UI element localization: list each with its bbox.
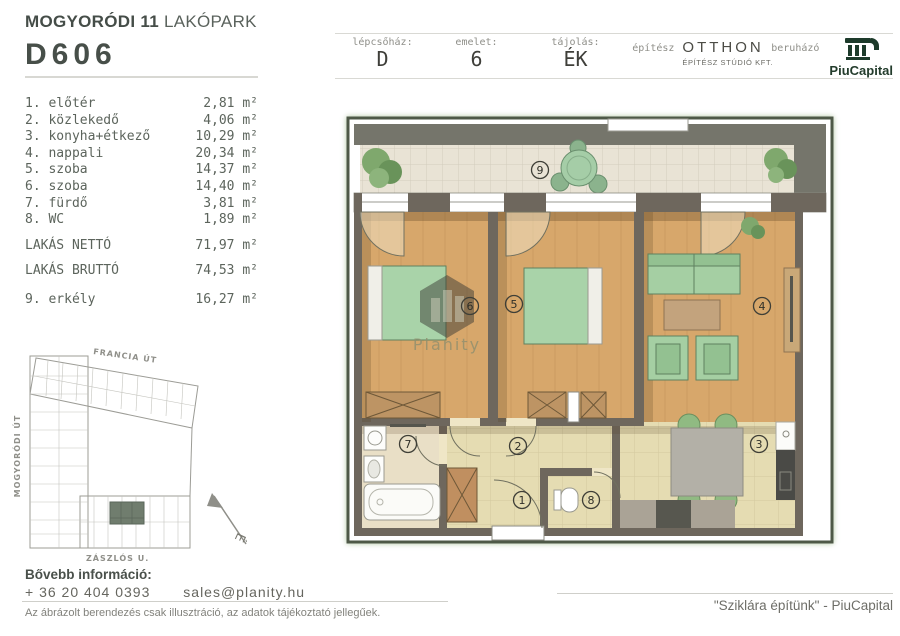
project-name-bold: MOGYORÓDI 11 [25, 12, 159, 31]
room-row: 7. fürdő3,81 m² [25, 196, 258, 213]
north-arrow: É [207, 493, 249, 545]
highlighted-unit [110, 502, 144, 524]
room-area: 4,06 m² [203, 113, 258, 130]
room-row: 8. WC1,89 m² [25, 212, 258, 229]
balcony-area: 16,27 m² [195, 292, 258, 309]
street-label-left: MOGYORÓDI ÚT [11, 415, 22, 498]
floor-plan: Planity 1 2 3 4 5 6 7 8 9 [346, 116, 834, 544]
footer-info-heading: Bővebb információ: [25, 567, 152, 582]
room-area: 1,89 m² [203, 212, 258, 229]
room-row: 3. konyha+étkező10,29 m² [25, 129, 258, 146]
room-row: 2. közlekedő4,06 m² [25, 113, 258, 130]
bathroom-shelf [390, 424, 426, 427]
project-name-light: LAKÓPARK [164, 12, 257, 31]
svg-text:9: 9 [537, 164, 544, 177]
toilet [554, 488, 578, 512]
architect-label: építész [632, 43, 674, 78]
site-plan: FRANCIA ÚT MOGYORÓDI ÚT ZÁSZLÓS U. É [8, 336, 286, 564]
footer-divider-right [557, 593, 893, 594]
entry-door-threshold [492, 526, 544, 540]
wardrobe-room6 [366, 392, 440, 418]
unit-underline [25, 76, 258, 78]
svg-text:Planity: Planity [413, 335, 481, 354]
floor-value: 6 [470, 48, 482, 70]
company-tagline: "Sziklára építünk" - PiuCapital [714, 598, 893, 613]
footer-contact: + 36 20 404 0393 sales@planity.hu [25, 584, 305, 600]
footer-divider-left [22, 601, 448, 602]
room-area: 20,34 m² [195, 146, 258, 163]
room-row: 6. szoba14,40 m² [25, 179, 258, 196]
datasheet-page: MOGYORÓDI 11 LAKÓPARK D606 lépcsőház: D … [0, 0, 900, 636]
sofa [648, 254, 740, 294]
architect-name: OTTHON [682, 40, 773, 56]
orientation-value: ÉK [563, 48, 587, 70]
total-gross-area: 74,53 m² [195, 263, 258, 280]
disclaimer-text: Az ábrázolt berendezés csak illusztráció… [25, 607, 380, 619]
room-row: 4. nappali20,34 m² [25, 146, 258, 163]
bed-room5 [524, 268, 602, 344]
total-net-row: LAKÁS NETTÓ71,97 m² [25, 238, 258, 255]
total-net-area: 71,97 m² [195, 238, 258, 255]
info-cell-floor: emelet: 6 [430, 34, 523, 78]
floor-plan-drawing: Planity 1 2 3 4 5 6 7 8 9 [346, 116, 834, 544]
street-label-top: FRANCIA ÚT [93, 345, 158, 365]
kitchen-counter-bottom [620, 500, 735, 528]
north-letter: É [231, 530, 249, 544]
svg-text:3: 3 [756, 438, 763, 451]
dining-set [671, 414, 743, 511]
sink [364, 456, 384, 482]
room-area: 3,81 m² [203, 196, 258, 213]
room-area: 10,29 m² [195, 129, 258, 146]
email-address[interactable]: sales@planity.hu [183, 584, 305, 600]
coffee-table [664, 300, 720, 330]
room-area: 14,40 m² [195, 179, 258, 196]
developer-logo: PiuCapital [829, 36, 893, 78]
svg-text:7: 7 [405, 438, 412, 451]
svg-text:8: 8 [588, 494, 595, 507]
developer-cell: beruházó PiuCapital [773, 34, 893, 78]
unit-id: D606 [25, 38, 117, 72]
entry-wardrobe [447, 468, 477, 522]
project-title: MOGYORÓDI 11 LAKÓPARK [25, 12, 257, 32]
tv-cabinet [784, 268, 800, 352]
svg-text:2: 2 [515, 440, 522, 453]
room-area: 14,37 m² [195, 162, 258, 179]
svg-text:6: 6 [467, 300, 474, 313]
total-gross-row: LAKÁS BRUTTÓ74,53 m² [25, 263, 258, 280]
kitchen-counter-right [776, 422, 795, 500]
room-area: 2,81 m² [203, 96, 258, 113]
svg-text:4: 4 [759, 300, 766, 313]
site-plan-drawing: FRANCIA ÚT MOGYORÓDI ÚT ZÁSZLÓS U. É [8, 336, 286, 564]
developer-name: PiuCapital [829, 63, 893, 78]
svg-text:1: 1 [519, 494, 526, 507]
staircase-value: D [376, 48, 388, 70]
developer-label: beruházó [771, 43, 819, 78]
architect-cell: építész OTTHON ÉPÍTÉSZ STÚDIÓ KFT. [628, 34, 773, 78]
info-cell-orientation: tájolás: ÉK [523, 34, 628, 78]
room-row: 5. szoba14,37 m² [25, 162, 258, 179]
street-label-bottom: ZÁSZLÓS U. [86, 552, 149, 563]
architect-subname: ÉPÍTÉSZ STÚDIÓ KFT. [682, 58, 773, 67]
room-list: 1. előtér2,81 m² 2. közlekedő4,06 m² 3. … [25, 96, 258, 309]
room-row: 1. előtér2,81 m² [25, 96, 258, 113]
washing-machine [364, 426, 386, 450]
svg-text:5: 5 [511, 298, 518, 311]
unit-info-table: lépcsőház: D emelet: 6 tájolás: ÉK építé… [335, 33, 893, 79]
info-cell-staircase: lépcsőház: D [335, 34, 430, 78]
phone-number[interactable]: + 36 20 404 0393 [25, 584, 150, 600]
balcony-row: 9. erkély16,27 m² [25, 292, 258, 309]
piucapital-column-icon [839, 36, 883, 62]
bathtub [364, 484, 440, 520]
